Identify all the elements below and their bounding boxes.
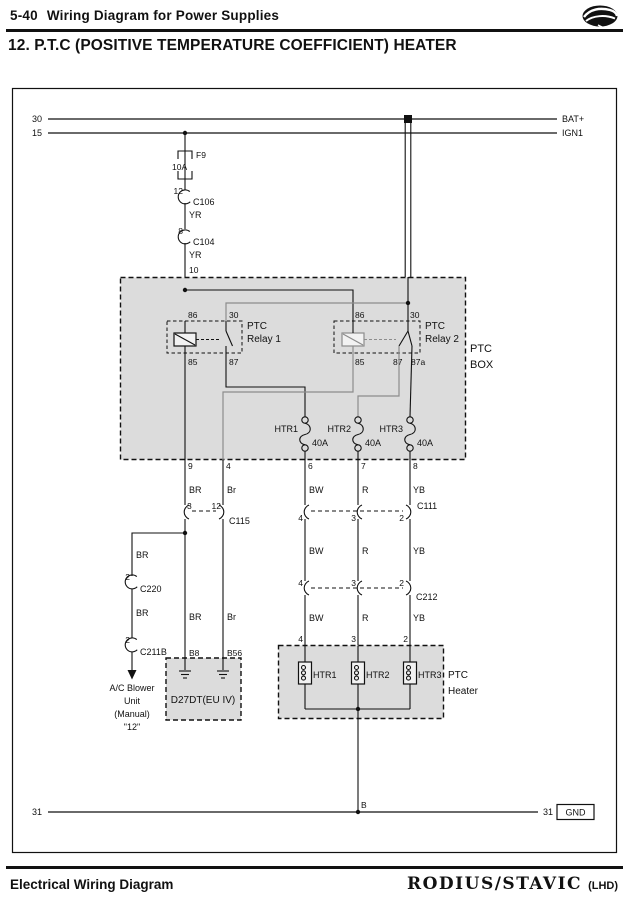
ecu-name: D27DT(EU IV) (171, 695, 235, 706)
ground-rail: B 31 31 GND (32, 709, 594, 820)
footer-label: Electrical Wiring Diagram (10, 877, 173, 892)
ptc-box-label: BOX (470, 359, 494, 371)
connector-pin: 2 (125, 635, 130, 645)
wire-color-label: Br (227, 612, 236, 622)
pin-b-label: B (361, 800, 367, 810)
heater-element-label: HTR3 (418, 670, 442, 680)
wire-color-label: YB (413, 485, 425, 495)
pin-label: 9 (188, 461, 193, 471)
connector-pin: 3 (187, 501, 192, 511)
pin-label: 4 (298, 634, 303, 644)
relay-name: Relay 1 (247, 334, 281, 345)
connector-pin: 3 (351, 513, 356, 523)
connector-pin: 2 (399, 578, 404, 588)
relay-pin-85: 85 (355, 357, 365, 367)
htr-fuse-name: HTR1 (274, 424, 298, 434)
fuse-name: F9 (196, 150, 206, 160)
connector-c111: 4 3 2 C111 (298, 501, 437, 523)
wire-color-label: YB (413, 613, 425, 623)
wire-color-label: R (362, 613, 369, 623)
heater-box-label: Heater (448, 686, 479, 697)
pin-label: B56 (227, 648, 242, 658)
fuse-f9: F9 10A (172, 133, 206, 190)
wire-color-label: BR (189, 612, 202, 622)
ptc-heater-box: HTR1 HTR2 HTR3 PTC Heater (279, 646, 479, 719)
wiring-diagram: 30 BAT+ 15 IGN1 F9 10A 12 C106 (0, 0, 629, 901)
page-footer: Electrical Wiring Diagram RODIUS/STAVIC … (10, 874, 618, 894)
connector-name: C111 (417, 501, 437, 511)
rail-31-label: 31 (543, 807, 553, 817)
power-rails: 30 BAT+ 15 IGN1 (32, 114, 584, 138)
destination-label: Unit (124, 696, 141, 706)
heater-element-label: HTR1 (313, 670, 337, 680)
ecu-box (166, 658, 241, 720)
diagram-frame (13, 89, 617, 853)
connector-pin: 3 (351, 578, 356, 588)
heater-element-label: HTR2 (366, 670, 390, 680)
htr-fuse-rating: 40A (417, 438, 433, 448)
connector-pin: 12 (212, 501, 222, 511)
wire-color-label: YR (189, 250, 202, 260)
connector-c106: 12 C106 YR (174, 186, 215, 229)
connector-name: C220 (140, 584, 162, 594)
connector-name: C104 (193, 237, 215, 247)
connector-pin: 4 (298, 513, 303, 523)
pin-label: 4 (226, 461, 231, 471)
heater-feed-wires: BW R YB (305, 519, 425, 581)
pin-label: 3 (351, 634, 356, 644)
relay-pin-30: 30 (410, 310, 420, 320)
footer-divider (6, 866, 623, 869)
connector-pin: 8 (178, 226, 183, 236)
arrow-icon (128, 670, 137, 680)
pin-label: B8 (189, 648, 200, 658)
wire-color-label: BR (136, 608, 149, 618)
destination-label: A/C Blower (109, 683, 154, 693)
relay-pin-86: 86 (355, 310, 365, 320)
wire-color-label: YB (413, 546, 425, 556)
htr-fuse-name: HTR2 (327, 424, 351, 434)
brand-variant: (LHD) (588, 880, 618, 892)
relay-pin-87: 87 (229, 357, 239, 367)
rail-ign-label: IGN1 (562, 128, 583, 138)
manual-page: 5-40Wiring Diagram for Power Supplies 12… (0, 0, 629, 901)
relay-pin-86: 86 (188, 310, 198, 320)
pin-label: 7 (361, 461, 366, 471)
relay-name: PTC (247, 321, 267, 332)
connector-pin: 4 (298, 578, 303, 588)
junction-dot (406, 301, 410, 305)
wire-color-label: BW (309, 485, 324, 495)
relay-name: PTC (425, 321, 445, 332)
htr-fuse-rating: 40A (312, 438, 328, 448)
rail-31-label: 31 (32, 807, 42, 817)
pin-label: 2 (403, 634, 408, 644)
htr-fuse-rating: 40A (365, 438, 381, 448)
relay-pin-30: 30 (229, 310, 239, 320)
rail-15-label: 15 (32, 128, 42, 138)
heater-box-label: PTC (448, 670, 468, 681)
wire-color-label: R (362, 485, 369, 495)
ptc-box-label: PTC (470, 343, 492, 355)
rail-bat-label: BAT+ (562, 114, 584, 124)
relay-name: Relay 2 (425, 334, 459, 345)
wire-color-label: BW (309, 613, 324, 623)
wire-color-label: BR (136, 550, 149, 560)
connector-name: C115 (229, 516, 250, 526)
htr-fuse-name: HTR3 (379, 424, 403, 434)
brand-name: RODIUS/STAVIC (407, 874, 582, 894)
harness-wires: BR Br BW R YB (185, 460, 425, 505)
wire-color-label: YR (189, 210, 202, 220)
pin-label: 6 (308, 461, 313, 471)
wire-color-label: BR (189, 485, 202, 495)
rail-30-label: 30 (32, 114, 42, 124)
ecu-section: BR Br B8 B56 D27DT(EU IV) (166, 519, 242, 720)
connector-name: C106 (193, 197, 215, 207)
connector-pin: 2 (125, 572, 130, 582)
relay-pin-87: 87 (393, 357, 403, 367)
wire-color-label: BW (309, 546, 324, 556)
wire-color-label: Br (227, 485, 236, 495)
destination-label: "12" (124, 722, 140, 732)
connector-name: C211B (140, 647, 167, 657)
pin-10-label: 10 (189, 265, 199, 275)
bat-feed-wire (405, 119, 411, 277)
relay-pin-85: 85 (188, 357, 198, 367)
connector-c115: 3 12 C115 (184, 501, 250, 526)
relay-pin-87a: 87a (411, 357, 425, 367)
wire-color-label: R (362, 546, 369, 556)
junction-dot (356, 810, 360, 814)
ptc-box: PTC BOX 86 30 85 87 PTC (121, 277, 494, 460)
connector-pin: 12 (174, 186, 184, 196)
gnd-label: GND (566, 808, 587, 818)
connector-name: C212 (416, 592, 438, 602)
connector-pin: 2 (399, 513, 404, 523)
pin-label: 8 (413, 461, 418, 471)
destination-label: (Manual) (114, 709, 150, 719)
fuse-rating: 10A (172, 162, 187, 172)
